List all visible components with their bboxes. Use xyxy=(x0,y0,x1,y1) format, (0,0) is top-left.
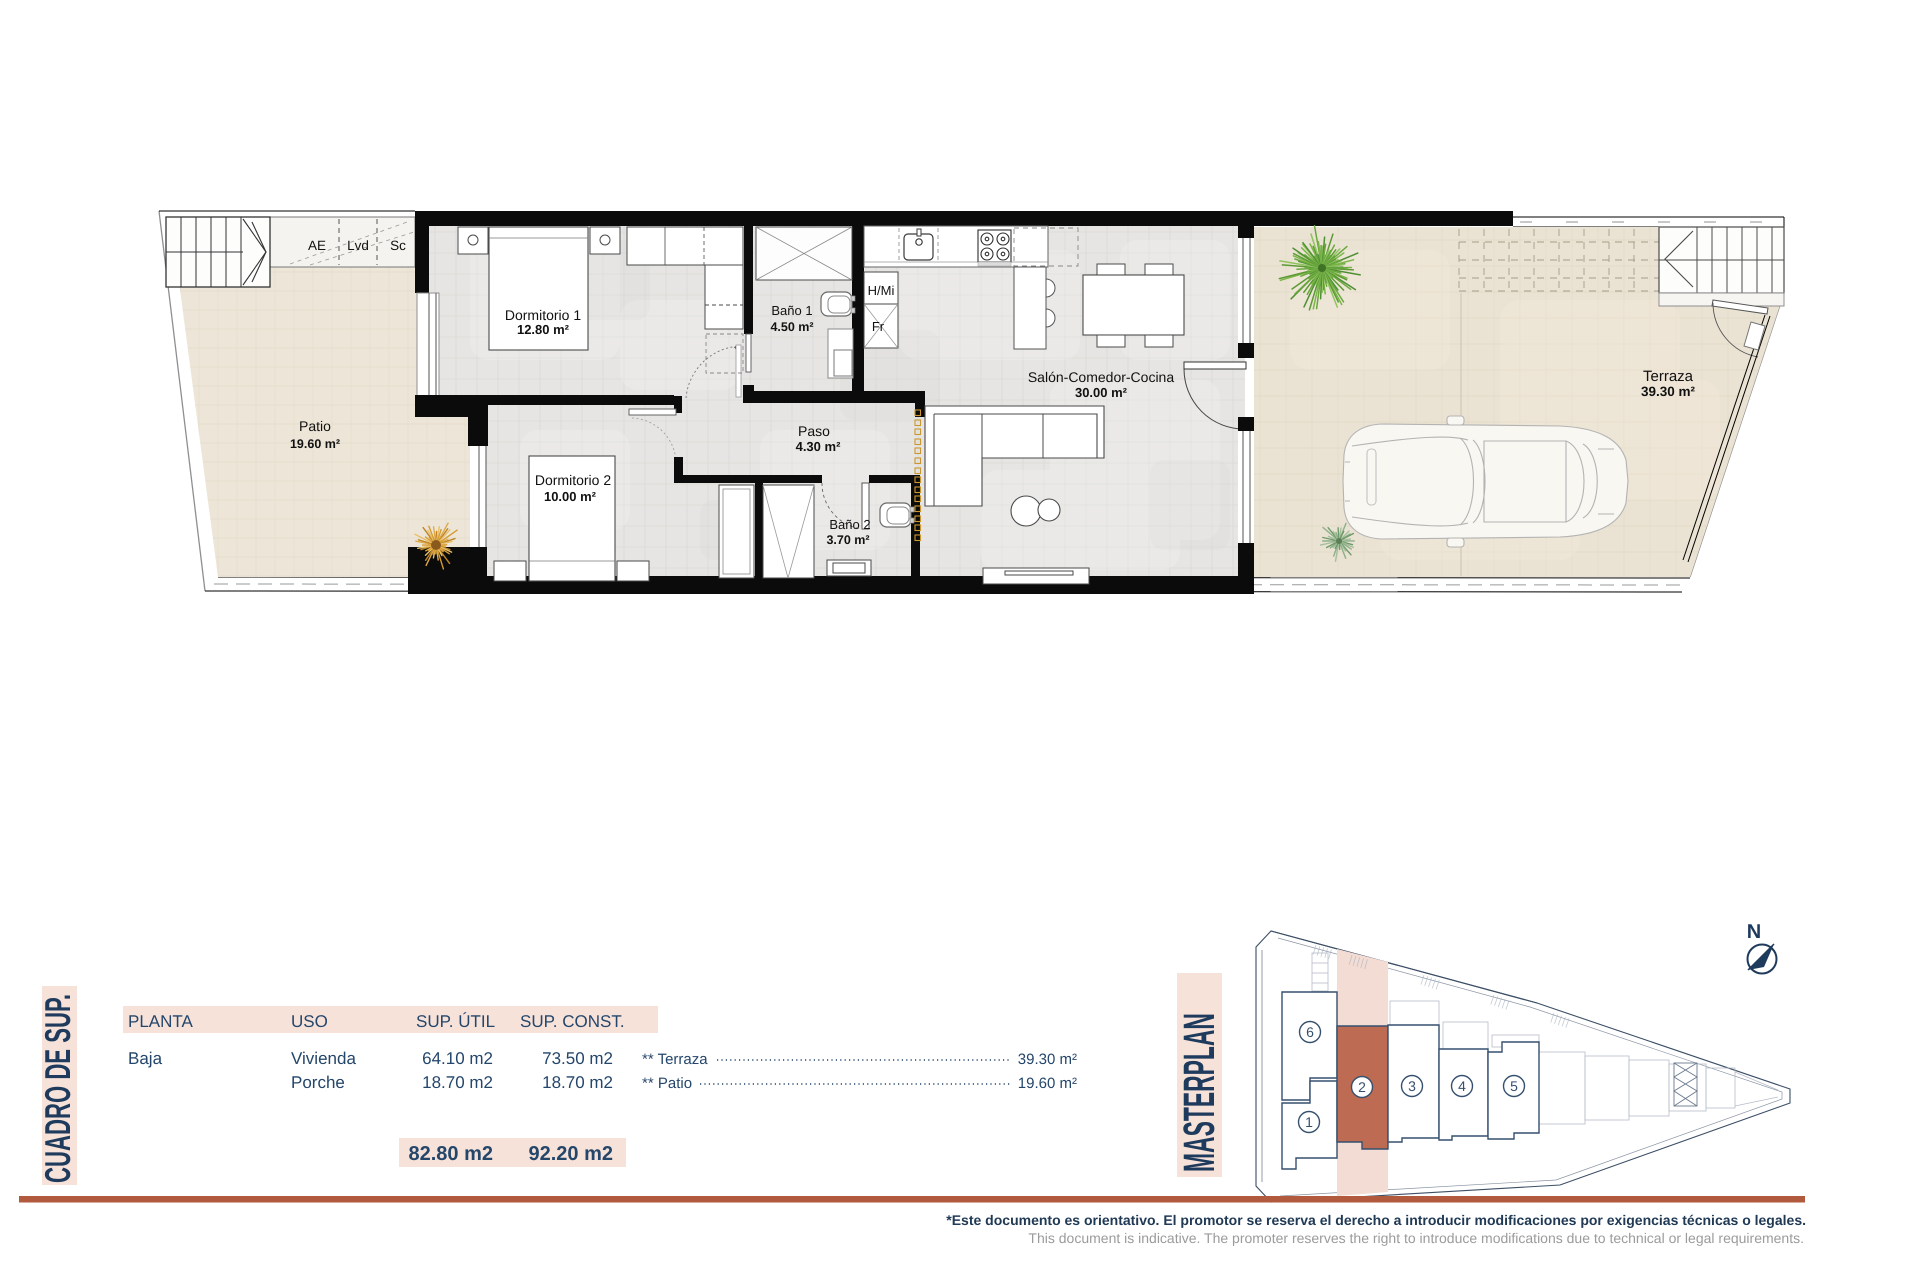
svg-text:** Patio: ** Patio xyxy=(642,1075,692,1092)
svg-text:Salón-Comedor-Cocina: Salón-Comedor-Cocina xyxy=(1028,369,1175,385)
svg-text:Lvd: Lvd xyxy=(347,238,369,253)
svg-text:4: 4 xyxy=(1458,1078,1466,1094)
svg-text:92.20 m2: 92.20 m2 xyxy=(528,1143,613,1165)
svg-text:4.50 m²: 4.50 m² xyxy=(770,320,813,334)
svg-text:18.70 m2: 18.70 m2 xyxy=(422,1073,493,1092)
svg-text:USO: USO xyxy=(291,1012,328,1031)
svg-text:64.10 m2: 64.10 m2 xyxy=(422,1049,493,1068)
svg-text:73.50 m2: 73.50 m2 xyxy=(542,1049,613,1068)
svg-text:2: 2 xyxy=(1358,1079,1366,1095)
svg-text:19.60 m²: 19.60 m² xyxy=(290,437,340,451)
svg-text:19.60 m²: 19.60 m² xyxy=(1018,1075,1077,1092)
svg-text:5: 5 xyxy=(1510,1078,1518,1094)
svg-text:Terraza: Terraza xyxy=(1643,368,1694,385)
svg-text:This document is indicative. T: This document is indicative. The promote… xyxy=(1028,1230,1804,1246)
svg-text:*Este documento es orientativo: *Este documento es orientativo. El promo… xyxy=(946,1212,1806,1228)
svg-text:Patio: Patio xyxy=(299,418,331,434)
svg-text:Paso: Paso xyxy=(798,423,830,439)
svg-text:39.30 m²: 39.30 m² xyxy=(1018,1051,1077,1068)
svg-text:6: 6 xyxy=(1306,1024,1314,1040)
svg-text:Fr: Fr xyxy=(872,319,885,334)
svg-text:39.30 m²: 39.30 m² xyxy=(1641,384,1696,399)
svg-text:Sc: Sc xyxy=(390,238,406,253)
svg-text:Porche: Porche xyxy=(291,1073,345,1092)
svg-text:SUP. ÚTIL: SUP. ÚTIL xyxy=(416,1012,495,1031)
svg-text:Dormitorio 2: Dormitorio 2 xyxy=(535,472,611,488)
svg-text:Vivienda: Vivienda xyxy=(291,1049,356,1068)
svg-text:** Terraza: ** Terraza xyxy=(642,1051,708,1068)
svg-text:Dormitorio 1: Dormitorio 1 xyxy=(505,307,581,323)
svg-text:10.00 m²: 10.00 m² xyxy=(544,489,597,504)
svg-text:CUADRO DE SUP.: CUADRO DE SUP. xyxy=(37,994,78,1183)
svg-text:MASTERPLAN: MASTERPLAN xyxy=(1175,1013,1224,1172)
svg-text:30.00 m²: 30.00 m² xyxy=(1075,385,1128,400)
svg-text:1: 1 xyxy=(1305,1114,1313,1130)
svg-text:AE: AE xyxy=(308,238,326,253)
svg-text:3: 3 xyxy=(1408,1078,1416,1094)
svg-text:Baja: Baja xyxy=(128,1049,163,1068)
svg-text:Baño 1: Baño 1 xyxy=(771,303,812,318)
svg-text:PLANTA: PLANTA xyxy=(128,1012,194,1031)
svg-text:N: N xyxy=(1747,921,1761,943)
svg-text:18.70 m2: 18.70 m2 xyxy=(542,1073,613,1092)
svg-text:Baño 2: Baño 2 xyxy=(829,517,870,532)
svg-text:SUP. CONST.: SUP. CONST. xyxy=(520,1012,625,1031)
svg-text:H/Mi: H/Mi xyxy=(868,283,895,298)
svg-text:4.30 m²: 4.30 m² xyxy=(796,439,841,454)
svg-text:12.80 m²: 12.80 m² xyxy=(517,322,570,337)
svg-text:3.70 m²: 3.70 m² xyxy=(826,533,869,547)
svg-text:82.80 m2: 82.80 m2 xyxy=(408,1143,493,1165)
